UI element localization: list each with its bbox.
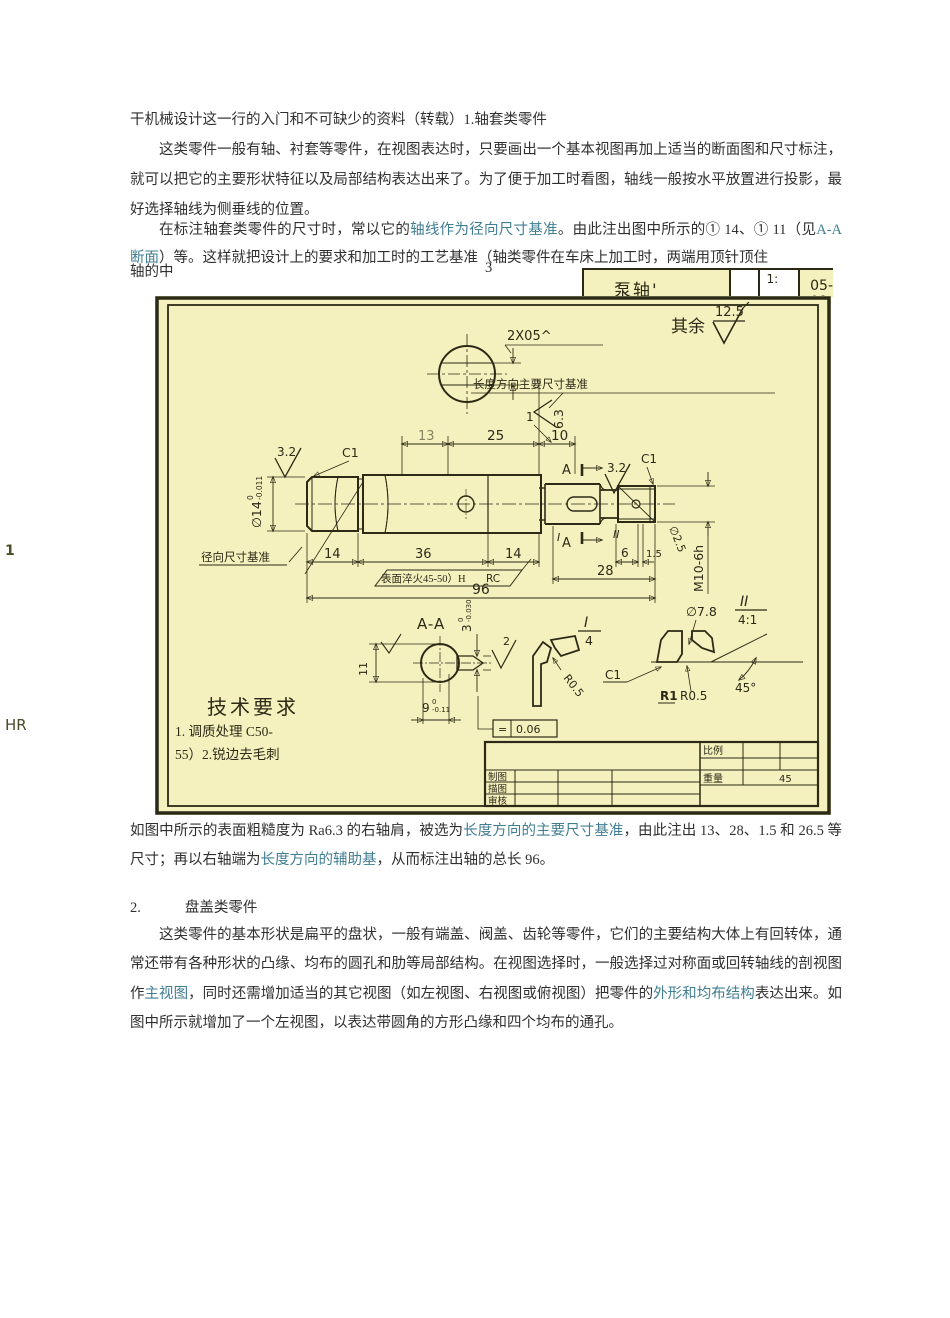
dim-28: 28 xyxy=(597,564,614,579)
p3-fragment-3: 3 xyxy=(485,260,492,277)
keyway-depth: 9 xyxy=(422,701,430,715)
thread-m10-label: M10-6h xyxy=(691,545,706,592)
drawing-svg: 其余 12.5 2X05^ 长度方向主要尺寸基准 6.3 xyxy=(155,296,831,815)
radial-datum-label: 径向尺寸基准 xyxy=(201,550,270,564)
tb-scale-label: 比例 xyxy=(703,744,723,757)
tech-req-line2: 55）2.锐边去毛刺 xyxy=(175,747,280,762)
title-block: 比例 重量 45 制图 描图 审核 xyxy=(485,742,818,807)
detail2-scale: 4:1 xyxy=(738,613,757,627)
keyway-width: 3 xyxy=(460,624,474,632)
angle-45: 45° xyxy=(735,681,756,695)
drawing-title-strip: 泵轴' 1: 05-01 xyxy=(582,268,833,298)
fcf-symbol: = xyxy=(498,723,507,736)
pump-shaft-drawing: 其余 12.5 2X05^ 长度方向主要尺寸基准 6.3 xyxy=(155,296,831,815)
dia14-tol-up: 0 xyxy=(246,495,255,500)
dim-1: 1 xyxy=(526,410,534,424)
p4-seg3: ，从而标注出轴的总长 96。 xyxy=(377,852,555,868)
paragraph-6: 这类零件的基本形状是扁平的盘状，一般有端盖、阀盖、齿轮等零件，它们的主要结构大体… xyxy=(130,921,842,1038)
keyway-width-tol-up: 0 xyxy=(457,618,465,622)
chamfer-c1-left: C1 xyxy=(342,445,359,460)
tb-drawn-label: 制图 xyxy=(488,771,507,783)
keyway-depth-tol-dn: -0.11 xyxy=(432,706,450,714)
chamfer-c1-right: C1 xyxy=(641,452,657,466)
section-a-a-view: A-A 11 3 0 -0.030 2 9 0 -0.11 = 0.06 xyxy=(357,599,557,737)
paragraph-2: 这类零件一般有轴、衬套等零件，在视图表达时，只要画出一个基本视图再加上适当的断面… xyxy=(130,135,842,225)
tb-weight-label: 重量 xyxy=(703,772,723,785)
dim-14b: 14 xyxy=(505,547,522,562)
section-label-a-top: A xyxy=(562,463,571,478)
tech-req-title: 技术要求 xyxy=(207,696,299,719)
detail-view-2: ∅7.8 II 4:1 C1 R1 R0.5 45° xyxy=(603,594,803,703)
dim-11: 11 xyxy=(357,662,370,676)
detail-mark-1: I xyxy=(557,531,560,544)
dim-25: 25 xyxy=(487,428,504,444)
tb-weight-value: 45 xyxy=(779,774,792,785)
dim-14a: 14 xyxy=(324,547,341,562)
detail1-scale: 4 xyxy=(585,633,593,648)
shaft-main-view: A A I II xyxy=(295,463,675,551)
keyway-width-tol-dn: -0.030 xyxy=(465,599,473,622)
length-datum-note: 长度方向主要尺寸基准 6.3 xyxy=(471,377,775,474)
left-labels: 3.2 C1 ∅14 0 -0.011 xyxy=(246,445,359,531)
tb-checked-label: 审核 xyxy=(488,795,508,807)
qiyu-label: 其余 xyxy=(671,317,705,336)
section-label-a-bottom: A xyxy=(562,536,571,551)
detail2-number: II xyxy=(740,594,748,610)
radius-r05-b: R0.5 xyxy=(680,689,707,703)
cross-hole-dia-label: ∅2.5 xyxy=(666,524,688,554)
tb-traced-label: 描图 xyxy=(488,783,507,795)
aa-title: A-A xyxy=(417,615,445,633)
roughness-2: 2 xyxy=(503,635,510,648)
p3-seg1: 在标注轴套类零件的尺寸时，常以它的 xyxy=(159,222,410,238)
p4-teal2: 长度方向的辅助基 xyxy=(261,852,377,868)
p4-teal1: 长度方向的主要尺寸基准 xyxy=(463,823,623,839)
keyway-depth-tol-up: 0 xyxy=(432,698,436,706)
p6-teal1: 主视图 xyxy=(145,986,189,1002)
p3-seg2: 。由此注出图中所示的① 14、① 11（见 xyxy=(558,222,816,238)
dia14-tol-dn: -0.011 xyxy=(255,476,264,500)
heading-2-number: 2. xyxy=(130,900,141,916)
roughness-icon xyxy=(381,634,401,653)
paragraph-4: 如图中所示的表面粗糙度为 Ra6.3 的右轴肩，被选为长度方向的主要尺寸基准，由… xyxy=(130,817,842,875)
radius-r05-a: R0.5 xyxy=(561,672,587,700)
p4-seg1: 如图中所示的表面粗糙度为 Ra6.3 的右轴肩，被选为 xyxy=(130,823,463,839)
fcf-value: 0.06 xyxy=(516,723,541,736)
roughness-6-3: 6.3 xyxy=(551,409,566,429)
hole-note-label: 2X05^ xyxy=(507,329,552,344)
surface-hardening-note-2: RC xyxy=(486,573,500,585)
roughness-12-5: 12.5 xyxy=(715,305,744,320)
margin-fragment-1: 1 xyxy=(5,543,15,559)
strip-scale-cell: 1: xyxy=(760,270,800,298)
paragraph-title: 干机械设计这一行的入门和不可缺少的资料（转载）1.轴套类零件 xyxy=(130,105,842,135)
datum-note-label: 长度方向主要尺寸基准 xyxy=(473,377,588,391)
radius-r1: R1 xyxy=(660,689,678,703)
detail-view-1: R0.5 I 4 xyxy=(533,615,601,706)
top-section-view: 2X05^ xyxy=(427,329,603,414)
p3-teal1: 轴线作为径向尺寸基准 xyxy=(410,222,558,238)
p6-seg2: ，同时还需增加适当的其它视图（如左视图、右视图或俯视图）把零件的 xyxy=(188,986,653,1002)
chamfer-c1-detail: C1 xyxy=(605,668,621,682)
dim-36: 36 xyxy=(415,547,432,562)
surface-hardening-note: 表面淬火45-50）H xyxy=(381,572,466,585)
corner-roughness-note: 其余 12.5 xyxy=(671,302,749,343)
roughness-3-2-right: 3.2 xyxy=(607,461,626,475)
dia14-label: ∅14 xyxy=(249,501,264,528)
detail1-number: I xyxy=(584,615,588,631)
heading-2-title: 盘盖类零件 xyxy=(185,900,258,916)
strip-doc-number: 05-01 xyxy=(800,270,833,298)
heading-2: 2.盘盖类零件 xyxy=(130,893,842,923)
roughness-3-2-left: 3.2 xyxy=(277,445,296,459)
part-name: 泵轴' xyxy=(584,270,729,298)
margin-fragment-hr: HR xyxy=(5,716,27,734)
p6-teal2: 外形和均布结构 xyxy=(653,986,755,1002)
dim-10: 10 xyxy=(551,428,568,444)
strip-empty-cell xyxy=(729,270,761,298)
dim-6: 6 xyxy=(621,546,629,560)
dim-1-5: 1.5 xyxy=(646,549,662,560)
technical-requirements: 技术要求 1. 调质处理 C50- 55）2.锐边去毛刺 xyxy=(175,696,299,762)
groove-dia-7-8: ∅7.8 xyxy=(686,604,717,619)
tech-req-line1: 1. 调质处理 C50- xyxy=(175,724,273,739)
bottom-dimensions: 14 36 14 6 1.5 28 96 xyxy=(307,524,662,603)
top-dimensions: 13 25 10 1 xyxy=(402,410,575,474)
p3-clipped-line: 轴的中 xyxy=(130,260,430,281)
dim-13: 13 xyxy=(418,429,435,444)
